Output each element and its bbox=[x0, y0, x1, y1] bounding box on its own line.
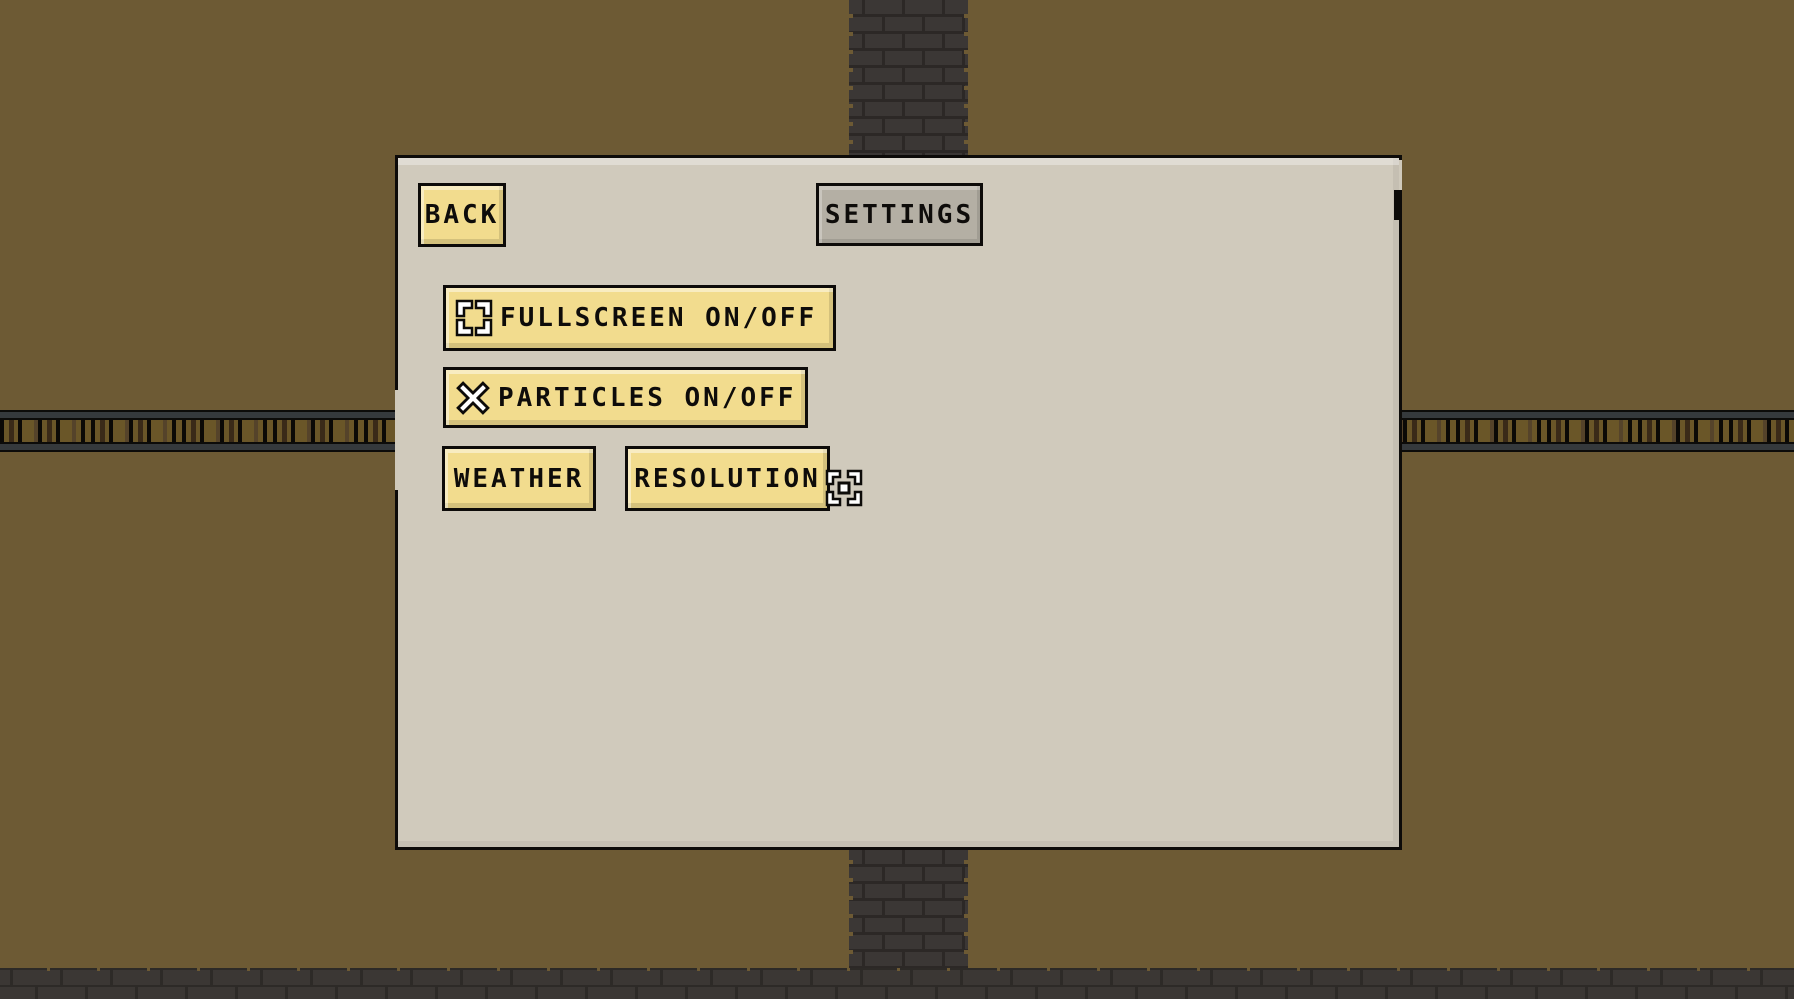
settings-title: SETTINGS bbox=[816, 183, 983, 246]
particles-toggle-button[interactable]: PARTICLES ON/OFF bbox=[443, 367, 808, 428]
resolution-button-label: RESOLUTION bbox=[634, 464, 821, 494]
brick-floor bbox=[0, 968, 1794, 999]
particles-button-label: PARTICLES ON/OFF bbox=[498, 383, 796, 413]
panel-border-gap bbox=[1399, 160, 1402, 190]
resolution-button[interactable]: RESOLUTION bbox=[625, 446, 830, 511]
settings-title-label: SETTINGS bbox=[825, 200, 974, 230]
settings-panel: BACK SETTINGS FULLSCREEN ON/OFF bbox=[395, 155, 1402, 850]
resize-viewfinder-icon bbox=[824, 468, 864, 508]
weather-button[interactable]: WEATHER bbox=[442, 446, 596, 511]
panel-border-gap bbox=[395, 390, 398, 490]
fullscreen-button-label: FULLSCREEN ON/OFF bbox=[500, 303, 817, 333]
panel-border-notch bbox=[1394, 190, 1402, 220]
back-button[interactable]: BACK bbox=[418, 183, 506, 247]
x-cross-icon bbox=[456, 381, 490, 415]
fullscreen-toggle-button[interactable]: FULLSCREEN ON/OFF bbox=[443, 285, 836, 351]
back-button-label: BACK bbox=[425, 200, 500, 230]
fullscreen-corners-icon bbox=[454, 298, 494, 338]
game-background: BACK SETTINGS FULLSCREEN ON/OFF bbox=[0, 0, 1794, 999]
weather-button-label: WEATHER bbox=[454, 464, 585, 494]
